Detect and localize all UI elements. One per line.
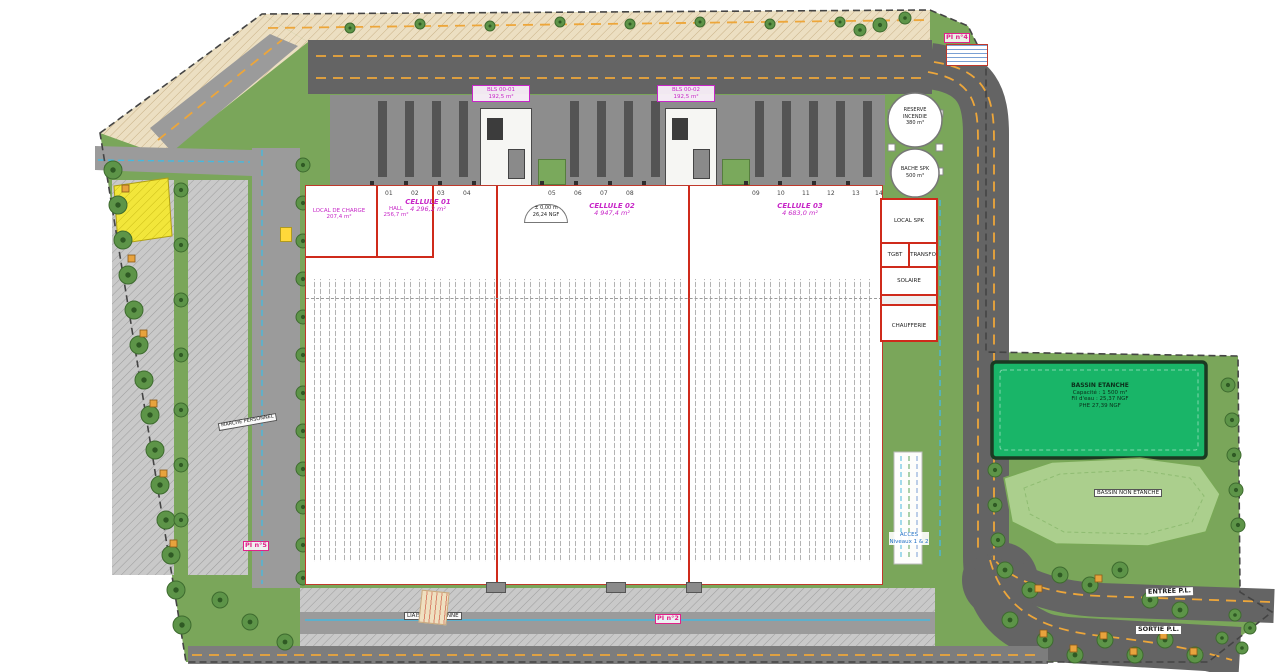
hydrant-pi2: PI n°2 [655,614,681,624]
basin-etanche-phe: PHE 27,39 NGF [1042,403,1158,410]
stair-flight-icon [508,149,525,179]
tp-marker-icon [280,227,292,242]
west-road [252,148,300,588]
bache-spk-label: BACHE SPK 500 m³ [888,166,942,179]
south-door-1 [486,582,506,593]
bls1-label: BLS 00-01 192,5 m² [472,85,530,102]
acces-line1: ACCES [889,532,929,539]
room-solaire: SOLAIRE [882,268,936,296]
dock-number: 11 [802,190,810,197]
basin-etanche-name: BASSIN ETANCHE [1042,382,1158,390]
south-door-2 [606,582,626,593]
reserve-volume: 380 m³ [888,120,942,127]
north-truck-court [308,40,932,94]
room-local-spk-label: LOCAL SPK [894,218,924,224]
acces-label: ACCES Niveaux 1 & 2 [889,532,929,545]
expansion-joint-line [306,298,882,299]
basin-etanche-invert: Fil d'eau : 25,37 NGF [1042,396,1158,403]
stamp-note-icon [418,590,449,626]
bls1-name: BLS 00-01 [473,87,529,94]
racking-area [314,279,874,562]
room-tgbt-label: TGBT [882,244,908,266]
room-chaufferie-label: CHAUFFERIE [892,323,927,329]
dock-number: 08 [626,190,634,197]
basin-etanche-label: BASSIN ETANCHE Capacité : 1 500 m³ Fil d… [1042,382,1158,410]
dock-number: 03 [437,190,445,197]
hall-area: 256,7 m² [372,212,420,218]
level-ngf: 26,24 NGF [525,212,567,219]
cell-wall-2 [688,186,690,584]
dock-number: 10 [777,190,785,197]
cell-02-area: 4 947,4 m² [572,210,652,217]
site-plan: BLS 00-01 192,5 m² BLS 00-02 192,5 m² LO… [0,0,1280,672]
hydrant-pi4: PI n°4 [944,33,970,43]
stair-core-icon [672,118,688,140]
truck-bays-1 [378,101,478,177]
stair-module-1 [480,108,532,189]
cell-03-label: CELLULE 03 4 683,0 m² [760,202,840,218]
bls1-area: 192,5 m² [473,94,529,101]
dock-number: 12 [827,190,835,197]
dock-number: 06 [574,190,582,197]
acces-line2: Niveaux 1 & 2 [889,539,929,546]
bache-volume: 500 m³ [888,173,942,180]
stair-core-icon [487,118,503,140]
dock-number: 04 [463,190,471,197]
truck-bays-3 [755,101,883,177]
dock-apron [330,95,885,185]
room-solaire-label: SOLAIRE [897,278,921,284]
parking-strip-b [188,180,248,575]
technical-rooms: LOCAL SPK TGBT TRANSFO SOLAIRE CHAUFFERI… [880,198,938,342]
basin-non-etanche-label: BASSIN NON ETANCHE [1094,489,1162,497]
hydrant-pi5: PI n°5 [243,541,269,551]
level-marker: ± 0,00 m 26,24 NGF [524,204,568,223]
bls2-area: 192,5 m² [658,94,714,101]
dock-number: 07 [600,190,608,197]
dock-number: 02 [411,190,419,197]
hall-label: HALL 256,7 m² [372,206,420,219]
cell-02-label: CELLULE 02 4 947,4 m² [572,202,652,218]
bls2-label: BLS 00-02 192,5 m² [657,85,715,102]
fire-access-strip [894,452,922,564]
dock-number: 09 [752,190,760,197]
note-box-icon [946,44,988,66]
south-mid-road [300,612,935,634]
dock-number: 14 [875,190,883,197]
entree-pl-label: ENTREE P.L. [1146,587,1193,596]
sortie-pl-label: SORTIE P.L. [1136,626,1181,634]
room-gap [882,296,936,306]
dock-number: 01 [385,190,393,197]
bls2-name: BLS 00-02 [658,87,714,94]
dock-number: 05 [548,190,556,197]
room-local-de-charge [306,186,378,258]
reserve-incendie-label: RESERVE INCENDIE 380 m³ [888,107,942,127]
stair-flight-icon [693,149,710,179]
stair-module-2 [665,108,717,189]
south-door-3 [686,582,702,593]
room-chaufferie: CHAUFFERIE [882,306,936,346]
dock-number: 13 [852,190,860,197]
cell-03-area: 4 683,0 m² [760,210,840,217]
local-charge-label: LOCAL DE CHARGE 207,4 m² [309,208,369,221]
room-transfo-label: TRANSFO [908,244,936,266]
level-value: ± 0,00 m [525,205,567,212]
cell-wall-1 [496,186,498,584]
warehouse-building [305,185,883,585]
basin-etanche-capacity: Capacité : 1 500 m³ [1042,390,1158,397]
truck-bays-2 [570,101,670,177]
local-charge-area: 207,4 m² [309,214,369,220]
room-local-spk: LOCAL SPK [882,200,936,244]
room-tgbt-transfo: TGBT TRANSFO [882,244,936,268]
